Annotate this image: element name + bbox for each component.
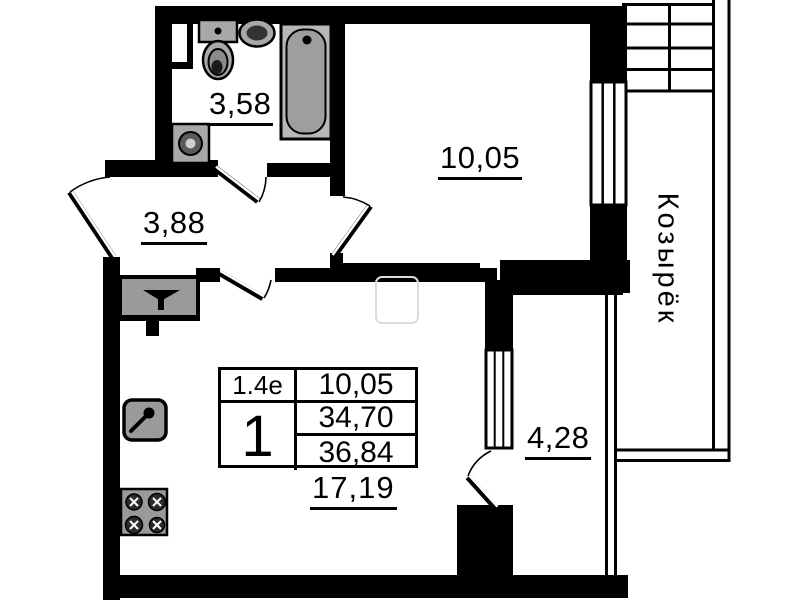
bathtub-icon [281, 24, 331, 139]
bathroom-area-label: 3,58 [207, 88, 273, 126]
canopy-label: Козырёк [651, 193, 684, 326]
wall-stub-below-wardrobe [146, 319, 159, 336]
balcony-door [468, 451, 498, 508]
room-count-cell: 1 [221, 403, 297, 470]
floor-plan-page: 3,58 10,05 3,88 4,28 17,19 Козырёк 1.4е … [0, 0, 799, 600]
bathroom-door [215, 167, 266, 202]
balcony-area-label: 4,28 [525, 422, 591, 460]
wall-left-outer [103, 257, 120, 600]
room-window [591, 82, 626, 205]
wall-balcony-corner [457, 505, 513, 575]
wall-right-lower [590, 205, 627, 293]
wall-bottom [103, 575, 628, 598]
balcony-partition-wall [607, 295, 616, 575]
washing-machine-icon [172, 124, 209, 163]
wall-bathroom-left [155, 6, 172, 177]
balcony-window [486, 350, 512, 448]
toilet-icon [199, 20, 237, 79]
room-door [333, 197, 370, 256]
wall-niche-bottom [172, 62, 193, 69]
living-area-cell: 10,05 [297, 370, 415, 403]
kitchen-sink-icon [124, 400, 166, 440]
room-area-label: 10,05 [438, 142, 522, 180]
wardrobe-icon [120, 277, 198, 317]
apartment-info-table: 1.4е 1 10,05 34,70 36,84 [218, 367, 418, 468]
wall-right-upper [590, 6, 627, 82]
hallway-area-label: 3,88 [141, 207, 207, 245]
wall-kitchen-top [275, 268, 497, 282]
ghost-watermark [376, 277, 418, 323]
total-area-cell: 36,84 [297, 436, 415, 470]
entry-door [70, 177, 115, 257]
wall-niche-right [187, 22, 193, 69]
apartment-area-cell: 34,70 [297, 403, 415, 436]
plan-type-cell: 1.4е [221, 370, 297, 403]
wall-niche [172, 24, 187, 62]
kitchen-living-area-label: 17,19 [310, 472, 397, 510]
bathroom-sink-icon [240, 20, 275, 47]
wall-balcony-left-upper [485, 280, 513, 350]
stove-icon [121, 489, 167, 535]
kitchen-door [220, 271, 271, 298]
